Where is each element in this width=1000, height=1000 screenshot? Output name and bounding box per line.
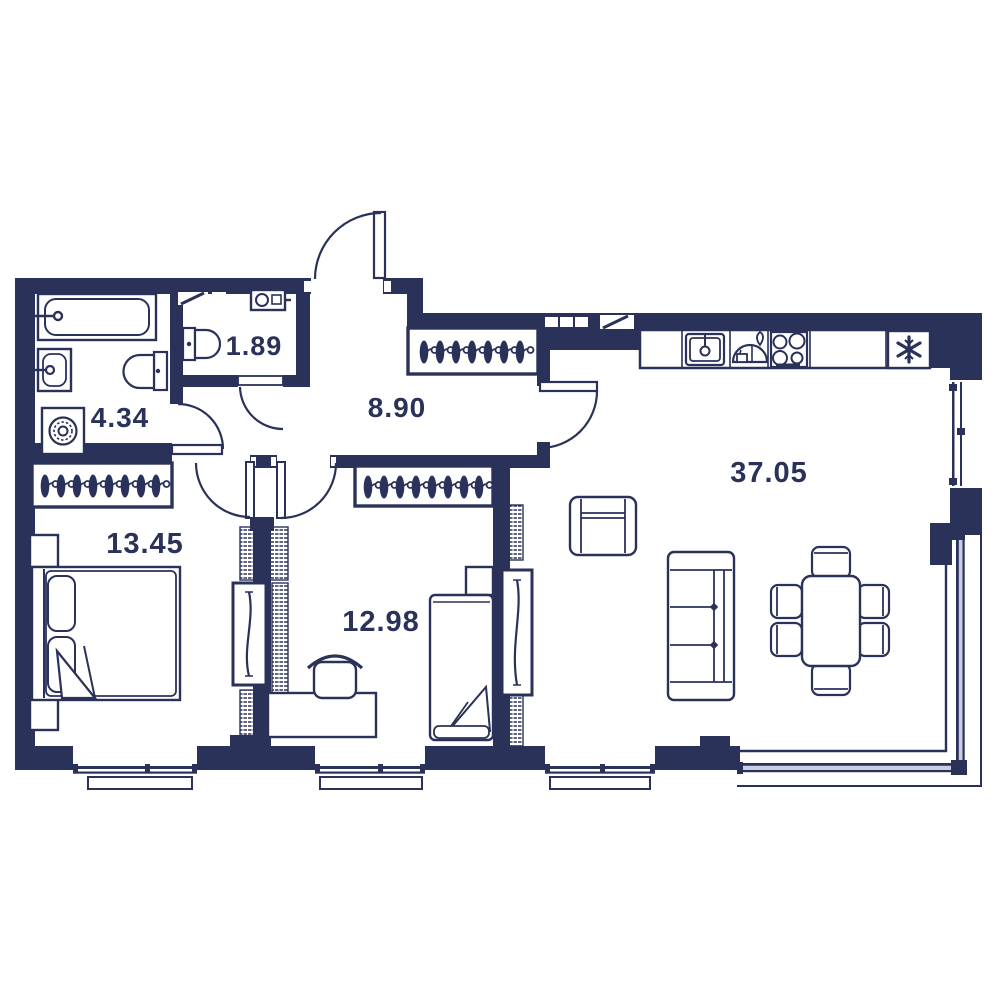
washing-machine-icon xyxy=(42,408,84,454)
floor-plan: 1.89 4.34 8.90 13.45 12.98 37.05 xyxy=(0,0,1000,1000)
door-jamb xyxy=(537,436,550,442)
vent-shaft-icon xyxy=(575,317,588,327)
vent-shaft-diagonal-icon xyxy=(600,315,634,329)
sofa-icon xyxy=(668,552,734,700)
water-heater-icon xyxy=(251,290,291,310)
washbasin-icon xyxy=(35,349,71,391)
bidet-icon xyxy=(124,352,167,390)
room-label-toilet: 1.89 xyxy=(226,331,283,361)
living-window xyxy=(545,764,655,789)
pillow xyxy=(48,576,75,631)
door-jamb xyxy=(271,457,276,466)
cooktop-icon xyxy=(771,332,807,367)
armchair-icon xyxy=(570,497,636,555)
room-label-hallway: 8.90 xyxy=(368,392,427,423)
wardrobe-kidsroom xyxy=(355,466,493,506)
floor-plan-page: 1.89 4.34 8.90 13.45 12.98 37.05 xyxy=(0,0,1000,1000)
bathtub-icon xyxy=(35,294,156,340)
vent-shaft-diagonal-icon xyxy=(178,292,208,305)
hatch-strip xyxy=(509,690,523,746)
dining-chair xyxy=(812,547,850,578)
double-bed xyxy=(32,567,180,700)
table-top xyxy=(802,576,860,666)
nightstand xyxy=(30,535,58,567)
fridge-snowflake-icon xyxy=(888,331,930,368)
headboard-shelf xyxy=(466,567,493,595)
desk-chair xyxy=(308,656,362,698)
vent-shaft-icon xyxy=(545,317,558,327)
dining-chair xyxy=(771,585,802,618)
kitchen xyxy=(640,330,930,368)
door-jamb xyxy=(384,281,391,292)
hatch-strip xyxy=(509,505,523,560)
room-label-living: 37.05 xyxy=(730,457,808,489)
nightstand xyxy=(30,698,58,730)
dining-chair xyxy=(771,623,802,656)
dining-chair xyxy=(812,664,850,695)
vent-shaft-icon xyxy=(560,317,573,327)
toilet-icon xyxy=(183,328,220,360)
room-label-bedroom: 13.45 xyxy=(106,528,184,560)
bedroom-window xyxy=(73,764,197,789)
wardrobe-bedroom xyxy=(32,463,172,507)
door-jamb xyxy=(304,281,311,292)
sliding-door-panel xyxy=(502,570,532,695)
desk xyxy=(268,693,376,737)
sliding-door-panel xyxy=(233,583,266,685)
wardrobe-hallway xyxy=(408,328,538,374)
room-label-bedroom-2: 12.98 xyxy=(342,606,420,638)
kitchen-sink-icon xyxy=(686,334,724,365)
kidsroom-window xyxy=(315,764,425,789)
dining-chair xyxy=(858,623,889,656)
dining-chair xyxy=(858,585,889,618)
vent-shaft-icon xyxy=(212,292,226,303)
room-label-bathroom: 4.34 xyxy=(91,402,150,433)
